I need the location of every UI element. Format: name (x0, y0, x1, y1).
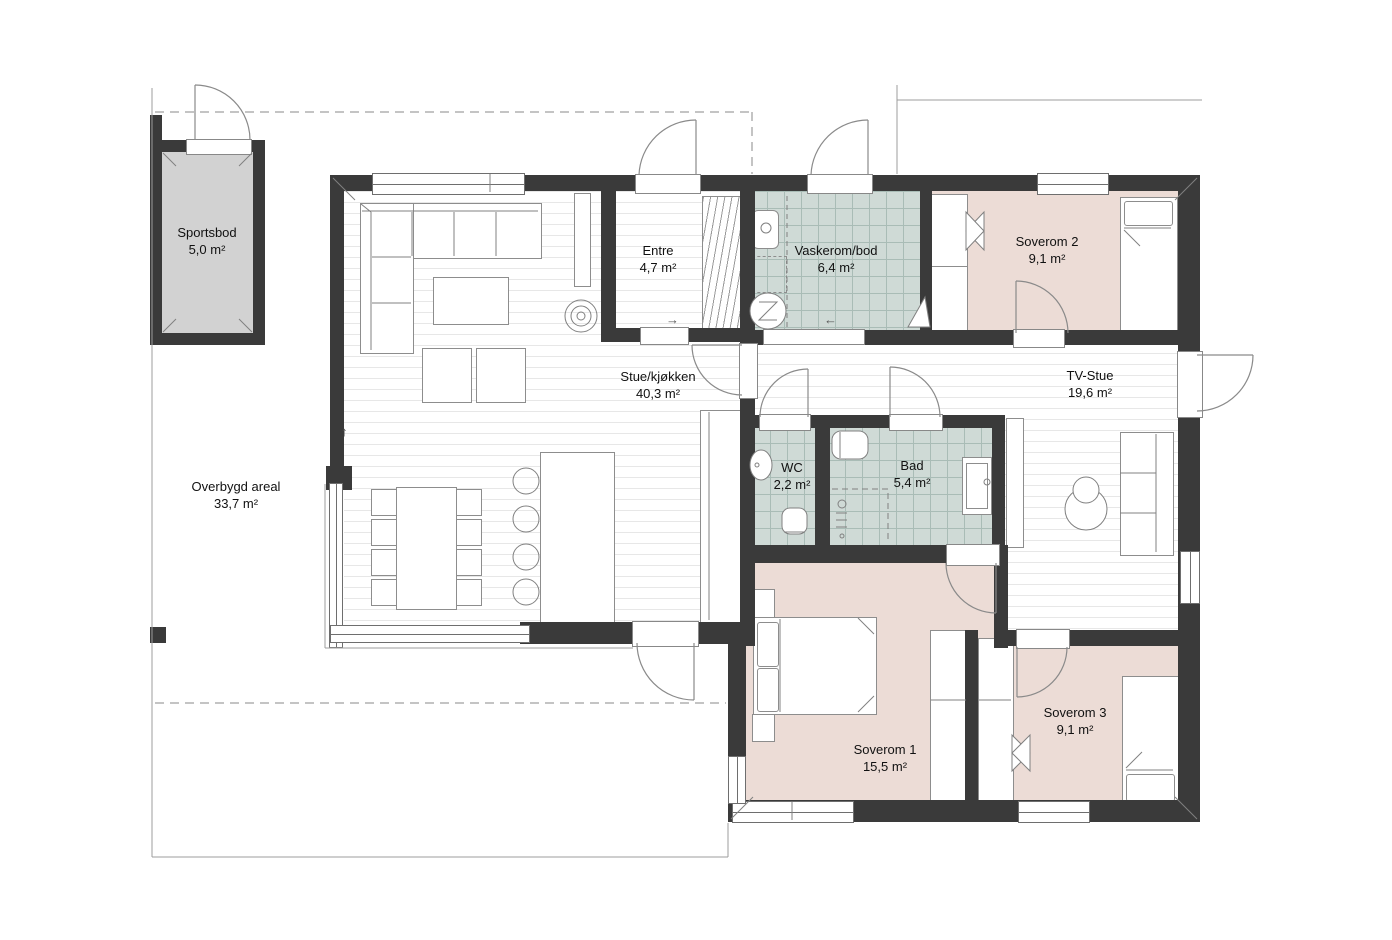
door-opening-tvstue-exterior (1177, 351, 1203, 418)
window-soverom2-top (1037, 173, 1109, 195)
terrace-post (150, 627, 166, 643)
floor-plan: Sportsbod 5,0 m² Entre 4,7 m² Vaskerom/b… (0, 0, 1392, 940)
arrow-up-icon: ↑ (341, 424, 348, 439)
nightstand (752, 589, 775, 618)
wall-stue-bottom (697, 622, 746, 644)
window-soverom3-bottom (1018, 801, 1090, 823)
pillow (1124, 201, 1173, 226)
window-stue-top (372, 173, 525, 195)
room-name: Bad (894, 458, 931, 475)
door-opening-soverom3 (1016, 629, 1070, 649)
wardrobe-soverom2 (928, 194, 968, 268)
wall-soverom1-soverom3 (965, 630, 978, 806)
armchair (476, 348, 526, 403)
room-area: 6,4 m² (795, 260, 878, 277)
wall-exterior-right (1178, 175, 1200, 822)
sliding-door-vaskerom-hall (763, 329, 865, 345)
dining-chair (371, 579, 399, 606)
window-soverom1-bottom (732, 801, 854, 823)
room-area: 4,7 m² (640, 260, 677, 277)
arrow-right-icon: → (666, 312, 679, 327)
room-name: Stue/kjøkken (620, 369, 695, 386)
room-label-tvstue: TV-Stue 19,6 m² (1067, 368, 1114, 402)
door-terrace (637, 643, 694, 700)
laundry-sink (752, 210, 779, 249)
sofa-chaise (360, 203, 414, 354)
room-area: 5,0 m² (177, 242, 236, 259)
room-name: TV-Stue (1067, 368, 1114, 385)
room-area: 40,3 m² (620, 386, 695, 403)
room-name: Soverom 1 (854, 742, 917, 759)
room-name: Entre (640, 243, 677, 260)
window-soverom1-left (728, 756, 746, 804)
wardrobe-soverom3 (978, 638, 1014, 805)
dining-chair (371, 519, 399, 546)
room-name: Soverom 2 (1016, 234, 1079, 251)
dining-chair (454, 489, 482, 516)
washer-dashed (752, 256, 787, 293)
room-area: 2,2 m² (774, 477, 811, 494)
room-area: 5,4 m² (894, 475, 931, 492)
nightstand (752, 714, 775, 742)
wall-vaskerom-soverom2 (920, 191, 932, 332)
entre-wardrobe (702, 196, 742, 332)
room-label-stue: Stue/kjøkken 40,3 m² (620, 369, 695, 403)
coffee-table (433, 277, 509, 325)
tv-bench (1006, 418, 1024, 548)
room-label-soverom3: Soverom 3 9,1 m² (1044, 705, 1107, 739)
arrow-left-icon: ← (824, 312, 837, 327)
door-opening-soverom1 (946, 544, 1000, 566)
room-label-bad: Bad 5,4 m² (894, 458, 931, 492)
room-area: 9,1 m² (1044, 722, 1107, 739)
glazing-stue-bottom (330, 625, 530, 643)
room-name: Soverom 3 (1044, 705, 1107, 722)
room-label-vaskerom: Vaskerom/bod 6,4 m² (795, 243, 878, 277)
room-label-soverom2: Soverom 2 9,1 m² (1016, 234, 1079, 268)
door-opening-entre (635, 174, 701, 194)
pillow (1126, 774, 1175, 802)
kitchen-counter (700, 410, 744, 624)
room-name: WC (774, 460, 811, 477)
door-opening-sportsbod (186, 139, 252, 155)
door-entre (639, 120, 696, 175)
room-label-overbygd-areal: Overbygd areal 33,7 m² (192, 479, 281, 513)
room-label-soverom1: Soverom 1 15,5 m² (854, 742, 917, 776)
dining-chair (454, 579, 482, 606)
room-label-sportsbod: Sportsbod 5,0 m² (177, 225, 236, 259)
pillow (757, 668, 779, 712)
glazing-stue-left (329, 483, 343, 648)
door-opening-vaskerom (807, 174, 873, 194)
door-opening-bad (889, 414, 943, 431)
wall-bad-tvstue (992, 415, 1005, 548)
shelf-cabinet (574, 193, 591, 287)
wall-stue-entre (601, 191, 616, 340)
vanity-basin (966, 463, 988, 509)
wardrobe-soverom2 (928, 266, 968, 333)
dining-chair (371, 549, 399, 576)
room-name: Overbygd areal (192, 479, 281, 496)
tv-sofa (1120, 432, 1174, 556)
armchair (422, 348, 472, 403)
door-opening-terrace (632, 621, 699, 647)
room-label-wc: WC 2,2 m² (774, 460, 811, 494)
wall-sportsbod (150, 333, 265, 345)
wall-sportsbod (150, 115, 162, 345)
dining-chair (454, 549, 482, 576)
door-sportsbod (195, 85, 250, 140)
room-name: Sportsbod (177, 225, 236, 242)
room-name: Vaskerom/bod (795, 243, 878, 260)
dining-table (396, 487, 457, 610)
dining-chair (454, 519, 482, 546)
wall-wc-bad (815, 428, 830, 545)
wall-sportsbod (253, 140, 265, 345)
room-area: 9,1 m² (1016, 251, 1079, 268)
kitchen-island (540, 452, 615, 624)
wall-stue-bottom (520, 622, 633, 644)
window-tvstue-right (1180, 551, 1200, 604)
pillow (757, 622, 779, 667)
door-vaskerom (811, 120, 868, 175)
wardrobe-soverom1 (930, 630, 969, 805)
room-area: 33,7 m² (192, 496, 281, 513)
room-area: 15,5 m² (854, 759, 917, 776)
door-opening-wc (759, 414, 811, 431)
room-label-entre: Entre 4,7 m² (640, 243, 677, 277)
door-opening-soverom2 (1013, 329, 1065, 348)
door-opening-stue-hall (739, 343, 758, 399)
opening-entre-stue (640, 327, 689, 345)
dining-chair (371, 489, 399, 516)
door-tvstue-exterior (1197, 355, 1253, 411)
room-area: 19,6 m² (1067, 385, 1114, 402)
